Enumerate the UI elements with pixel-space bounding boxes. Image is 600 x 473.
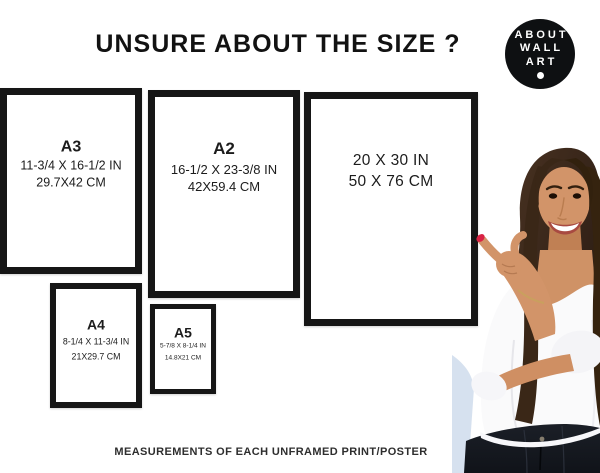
frame-a2: A2 16-1/2 X 23-3/8 IN 42X59.4 CM	[148, 90, 300, 298]
frame-a5-text: A5 5-7/8 X 8-1/4 IN 14.8X21 CM	[155, 326, 211, 365]
frame-a3: A3 11-3/4 X 16-1/2 IN 29.7X42 CM	[0, 88, 142, 274]
frame-a4-text: A4 8-1/4 X 11-3/4 IN 21X29.7 CM	[56, 315, 136, 364]
frame-size-label: A2	[155, 138, 293, 161]
brand-logo: ABOUT WALL ART	[505, 19, 575, 89]
size-guide-infographic: UNSURE ABOUT THE SIZE ? ABOUT WALL ART A…	[0, 0, 600, 473]
pointing-finger	[482, 240, 500, 259]
eye-right	[573, 193, 581, 198]
frame-size-cm: 29.7X42 CM	[7, 175, 135, 192]
frame-a3-text: A3 11-3/4 X 16-1/2 IN 29.7X42 CM	[7, 136, 135, 191]
frame-size-cm: 42X59.4 CM	[155, 178, 293, 196]
jeans-button	[540, 437, 545, 442]
frame-size-inches: 20 X 30 IN	[311, 151, 471, 172]
frame-size-cm: 21X29.7 CM	[56, 349, 136, 364]
frame-size-cm: 50 X 76 CM	[311, 172, 471, 193]
logo-line-2: WALL	[517, 42, 563, 55]
frame-size-cm: 14.8X21 CM	[155, 353, 211, 365]
woman-photo	[452, 140, 600, 473]
frame-20x30-text: 20 X 30 IN 50 X 76 CM	[311, 151, 471, 193]
page-title: UNSURE ABOUT THE SIZE ?	[58, 30, 498, 59]
eye-left	[549, 193, 557, 198]
frame-size-inches: 5-7/8 X 8-1/4 IN	[155, 341, 211, 353]
jeans-fly	[540, 443, 541, 470]
frame-size-label: A5	[155, 326, 211, 341]
frame-a5: A5 5-7/8 X 8-1/4 IN 14.8X21 CM	[150, 304, 216, 394]
frame-size-inches: 16-1/2 X 23-3/8 IN	[155, 161, 293, 179]
frame-size-inches: 11-3/4 X 16-1/2 IN	[7, 158, 135, 175]
frame-size-label: A3	[7, 136, 135, 158]
jeans	[464, 424, 600, 473]
logo-dot-icon	[537, 72, 544, 79]
frame-size-inches: 8-1/4 X 11-3/4 IN	[56, 334, 136, 349]
frame-a2-text: A2 16-1/2 X 23-3/8 IN 42X59.4 CM	[155, 138, 293, 196]
logo-line-1: ABOUT	[511, 29, 568, 42]
logo-line-3: ART	[523, 56, 558, 69]
frame-a4: A4 8-1/4 X 11-3/4 IN 21X29.7 CM	[50, 283, 142, 408]
footer-caption: MEASUREMENTS OF EACH UNFRAMED PRINT/POST…	[41, 446, 501, 458]
frame-size-label: A4	[56, 315, 136, 334]
